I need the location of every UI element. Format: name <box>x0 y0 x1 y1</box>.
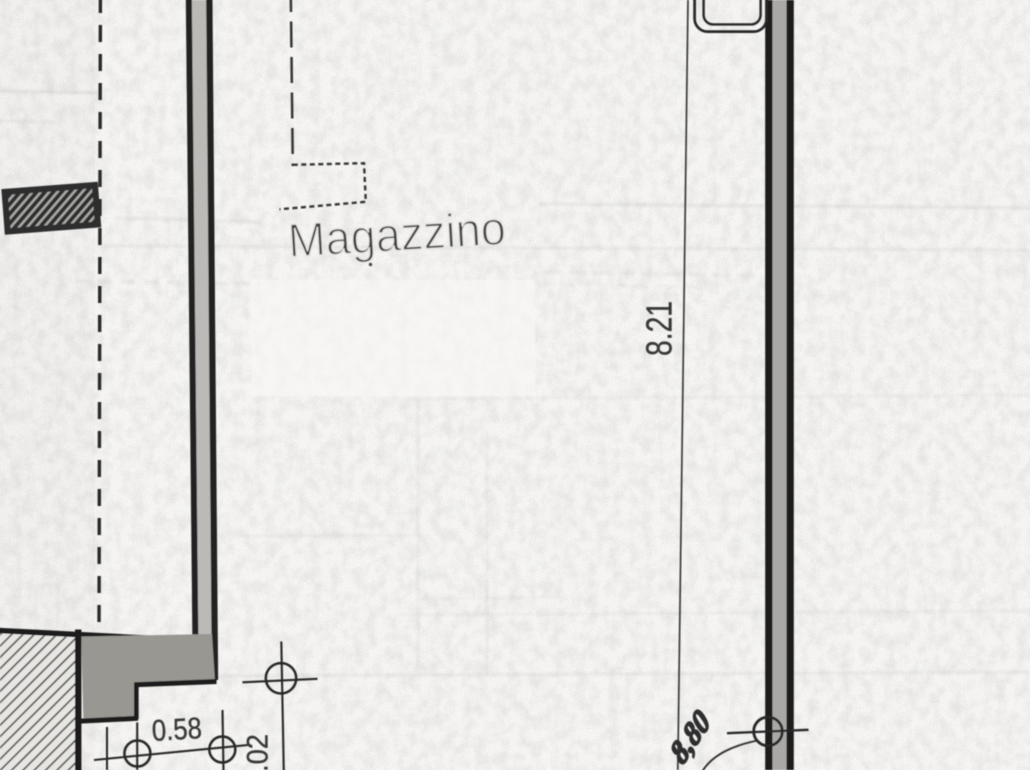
svg-text:.02: .02 <box>242 734 275 770</box>
svg-text:0.58: 0.58 <box>151 712 203 748</box>
svg-text:8.21: 8.21 <box>639 301 680 356</box>
